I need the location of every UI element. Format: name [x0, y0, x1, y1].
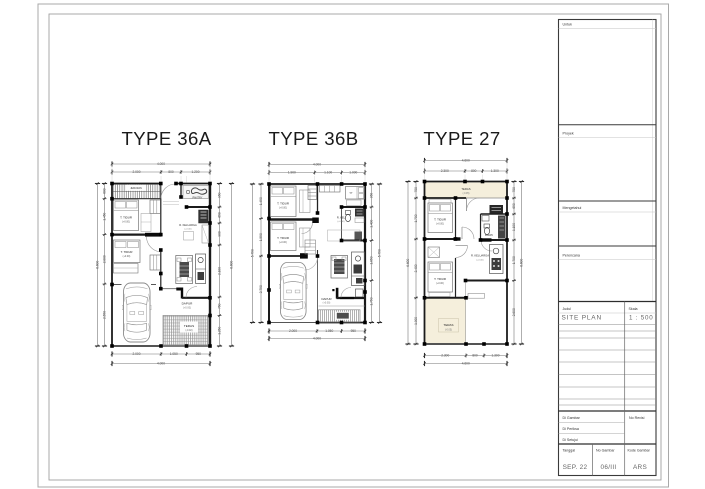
- svg-text:TYPE 36A: TYPE 36A: [121, 128, 211, 149]
- svg-text:T. TIDUR: T. TIDUR: [434, 218, 446, 222]
- svg-text:1.750: 1.750: [370, 297, 374, 305]
- svg-text:KM/WC: KM/WC: [485, 234, 494, 237]
- svg-text:R. KELUARGA: R. KELUARGA: [179, 223, 197, 227]
- svg-text:1.650: 1.650: [370, 256, 374, 264]
- svg-text:Judul: Judul: [563, 307, 572, 311]
- svg-text:(+0.00): (+0.00): [279, 241, 287, 244]
- svg-text:ARS: ARS: [633, 464, 647, 471]
- svg-text:1.250: 1.250: [218, 327, 222, 335]
- svg-text:TERAS: TERAS: [461, 187, 470, 191]
- svg-text:TYPE 36B: TYPE 36B: [268, 128, 358, 149]
- svg-text:4.000: 4.000: [313, 163, 321, 167]
- svg-text:R. KEL: R. KEL: [337, 216, 346, 220]
- svg-text:PANTRY: PANTRY: [193, 196, 203, 199]
- svg-text:600: 600: [103, 188, 107, 194]
- svg-text:(-0.05): (-0.05): [445, 328, 452, 331]
- svg-text:1.000: 1.000: [349, 171, 357, 175]
- svg-text:JEMURAN: JEMURAN: [130, 187, 142, 190]
- svg-text:1.400: 1.400: [370, 220, 374, 228]
- svg-text:(-0.02): (-0.02): [185, 329, 192, 332]
- svg-text:Di Gambar: Di Gambar: [563, 416, 581, 420]
- svg-text:950: 950: [370, 193, 374, 199]
- svg-text:TERAS: TERAS: [443, 323, 453, 327]
- svg-text:(+0.00): (+0.00): [123, 255, 131, 258]
- svg-text:1.050: 1.050: [170, 352, 178, 356]
- svg-text:(-0.05): (-0.05): [463, 193, 470, 195]
- svg-text:R. KELUARGA: R. KELUARGA: [471, 254, 489, 258]
- svg-text:1.900: 1.900: [414, 317, 418, 325]
- svg-text:1.300: 1.300: [491, 169, 499, 173]
- svg-text:T. TIDUR: T. TIDUR: [277, 236, 289, 240]
- svg-text:06/III: 06/III: [600, 464, 616, 471]
- svg-text:TYPE 27: TYPE 27: [423, 128, 500, 149]
- svg-text:950: 950: [351, 329, 357, 333]
- svg-text:DAPUR: DAPUR: [321, 297, 331, 301]
- svg-text:2.000: 2.000: [103, 255, 107, 263]
- svg-text:DAPUR: DAPUR: [182, 302, 194, 306]
- svg-text:T. TIDUR: T. TIDUR: [434, 277, 446, 281]
- svg-text:Di Setujui: Di Setujui: [563, 438, 579, 442]
- svg-text:2.000: 2.000: [289, 329, 297, 333]
- svg-text:1.700: 1.700: [512, 256, 516, 264]
- svg-text:1.900: 1.900: [288, 171, 296, 175]
- svg-text:6.600: 6.600: [520, 259, 524, 267]
- svg-text:4.000: 4.000: [313, 337, 321, 341]
- svg-text:(+0.00): (+0.00): [323, 302, 331, 305]
- svg-text:900: 900: [218, 231, 222, 237]
- svg-text:4.000: 4.000: [157, 162, 165, 166]
- svg-text:(+0.00): (+0.00): [338, 221, 345, 223]
- svg-text:5.750: 5.750: [378, 249, 382, 257]
- svg-text:700: 700: [512, 187, 516, 193]
- svg-text:950: 950: [218, 192, 222, 198]
- svg-text:5.750: 5.750: [251, 249, 255, 257]
- svg-text:(+0.00): (+0.00): [436, 282, 444, 285]
- svg-text:800: 800: [472, 354, 478, 358]
- svg-text:1.450: 1.450: [103, 212, 107, 220]
- svg-text:No Revisi: No Revisi: [629, 416, 645, 420]
- svg-text:700: 700: [414, 187, 418, 193]
- svg-text:800: 800: [471, 169, 477, 173]
- svg-text:2.000: 2.000: [133, 170, 141, 174]
- svg-text:(+0.00): (+0.00): [477, 260, 484, 262]
- svg-text:Untuk: Untuk: [563, 23, 573, 27]
- svg-text:T. TIDUR: T. TIDUR: [121, 250, 133, 254]
- svg-text:2.550: 2.550: [103, 311, 107, 319]
- svg-text:(+0.00): (+0.00): [183, 307, 191, 310]
- svg-text:6.600: 6.600: [406, 259, 410, 267]
- svg-text:1.100: 1.100: [324, 171, 332, 175]
- svg-text:T. TIDUR: T. TIDUR: [277, 202, 289, 206]
- svg-text:1.450: 1.450: [259, 197, 263, 205]
- svg-text:(+0.00): (+0.00): [279, 207, 287, 210]
- svg-text:SEP. 22: SEP. 22: [563, 464, 588, 471]
- svg-text:2.750: 2.750: [259, 285, 263, 293]
- svg-text:(+0.00): (+0.00): [436, 223, 444, 226]
- svg-text:1.550: 1.550: [259, 233, 263, 241]
- svg-text:2.300: 2.300: [441, 169, 449, 173]
- svg-text:2.100: 2.100: [218, 267, 222, 275]
- svg-text:650: 650: [218, 212, 222, 218]
- svg-text:Perencana: Perencana: [563, 254, 580, 258]
- svg-text:Tanggal: Tanggal: [563, 449, 576, 453]
- svg-text:2.600: 2.600: [512, 308, 516, 316]
- svg-text:2.300: 2.300: [441, 354, 449, 358]
- svg-text:1.700: 1.700: [414, 214, 418, 222]
- svg-text:4.000: 4.000: [157, 362, 165, 366]
- svg-text:T. TIDUR: T. TIDUR: [120, 216, 132, 220]
- svg-text:(+0.00): (+0.00): [185, 229, 192, 231]
- svg-text:Di Periksa: Di Periksa: [563, 427, 579, 431]
- svg-text:4.600: 4.600: [462, 362, 470, 366]
- svg-text:(+0.00): (+0.00): [122, 221, 130, 224]
- svg-text:6.600: 6.600: [230, 261, 234, 269]
- svg-text:1.050: 1.050: [325, 329, 333, 333]
- svg-text:800: 800: [168, 170, 174, 174]
- svg-text:Mengetahui: Mengetahui: [563, 206, 582, 210]
- svg-text:1.300: 1.300: [492, 354, 500, 358]
- svg-text:650: 650: [512, 203, 516, 209]
- svg-text:4.600: 4.600: [462, 159, 470, 163]
- svg-text:TERAS: TERAS: [184, 324, 194, 328]
- svg-text:1.200: 1.200: [192, 170, 200, 174]
- svg-text:SITE PLAN: SITE PLAN: [562, 314, 602, 321]
- svg-text:Proyek: Proyek: [563, 132, 574, 136]
- svg-text:No Gambar: No Gambar: [596, 449, 615, 453]
- svg-text:2.400: 2.400: [414, 264, 418, 272]
- svg-text:750: 750: [218, 303, 222, 309]
- svg-text:Kode Gambar: Kode Gambar: [628, 449, 651, 453]
- svg-text:1.100: 1.100: [512, 223, 516, 231]
- svg-text:6.600: 6.600: [96, 261, 100, 269]
- svg-text:2.000: 2.000: [133, 352, 141, 356]
- svg-text:950: 950: [196, 352, 202, 356]
- svg-text:Skala: Skala: [629, 307, 638, 311]
- svg-text:1 : 500: 1 : 500: [629, 314, 654, 321]
